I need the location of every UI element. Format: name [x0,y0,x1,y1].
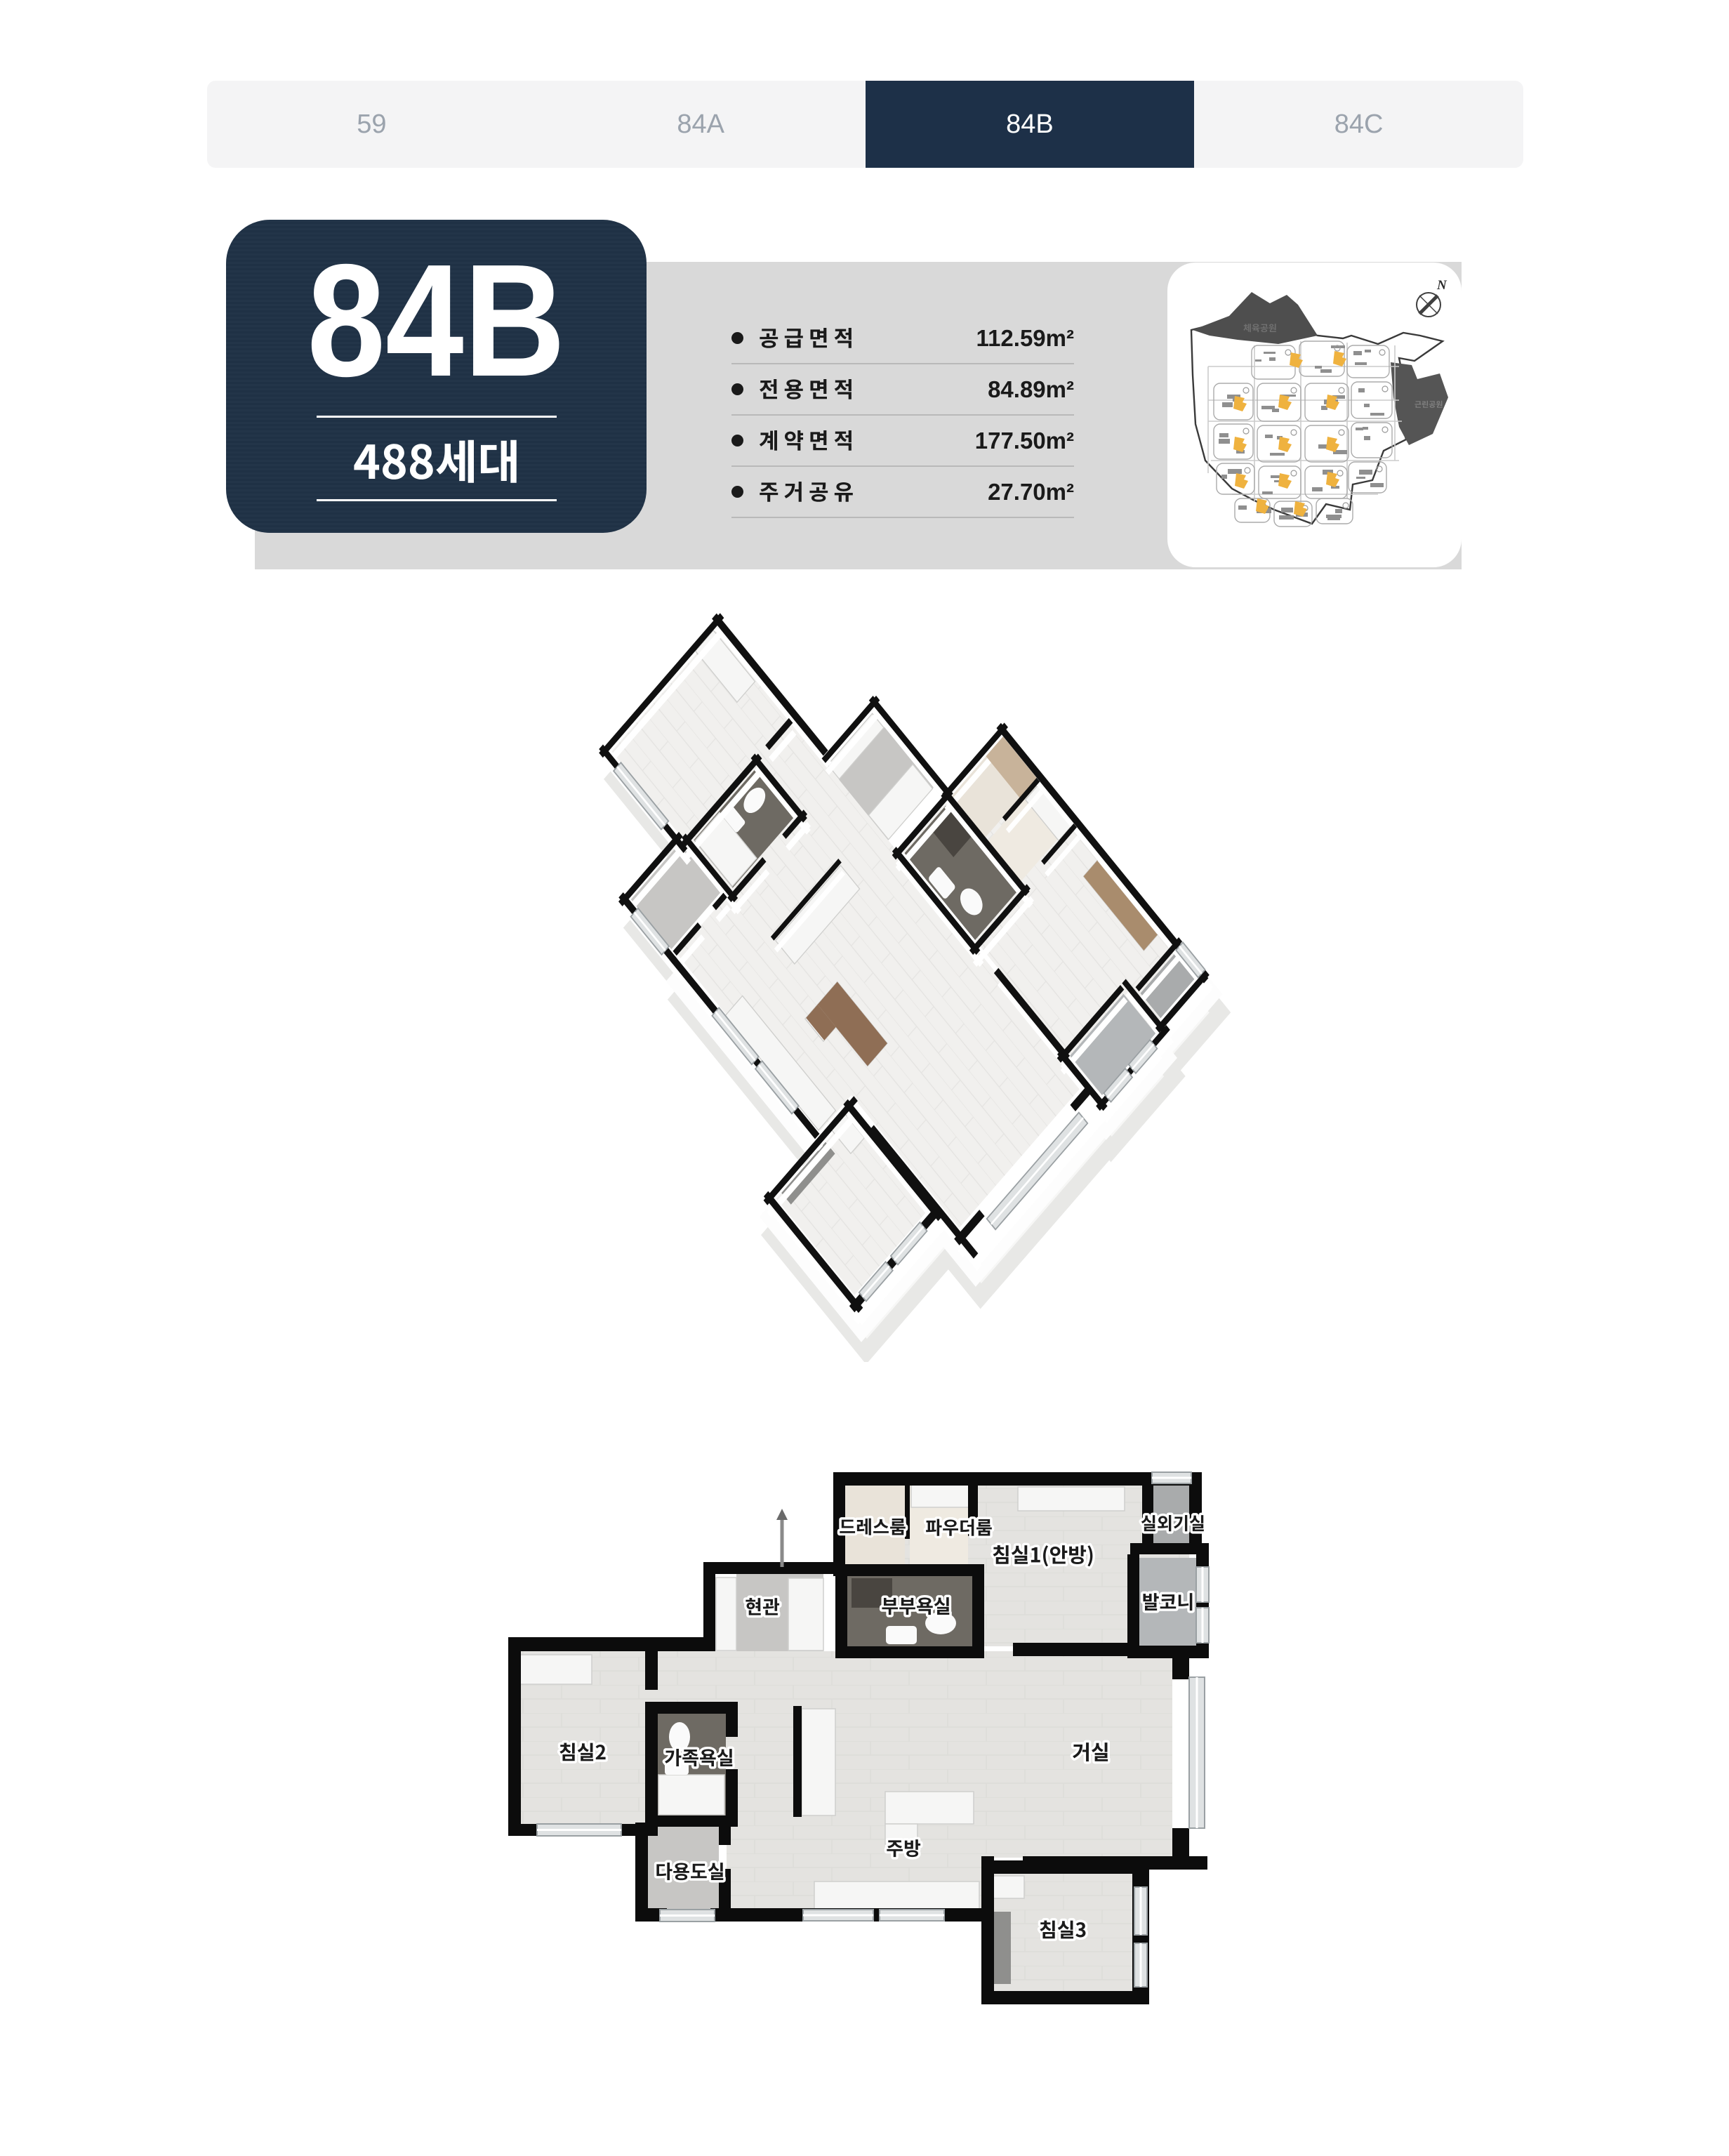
svg-text:N: N [1436,278,1448,293]
